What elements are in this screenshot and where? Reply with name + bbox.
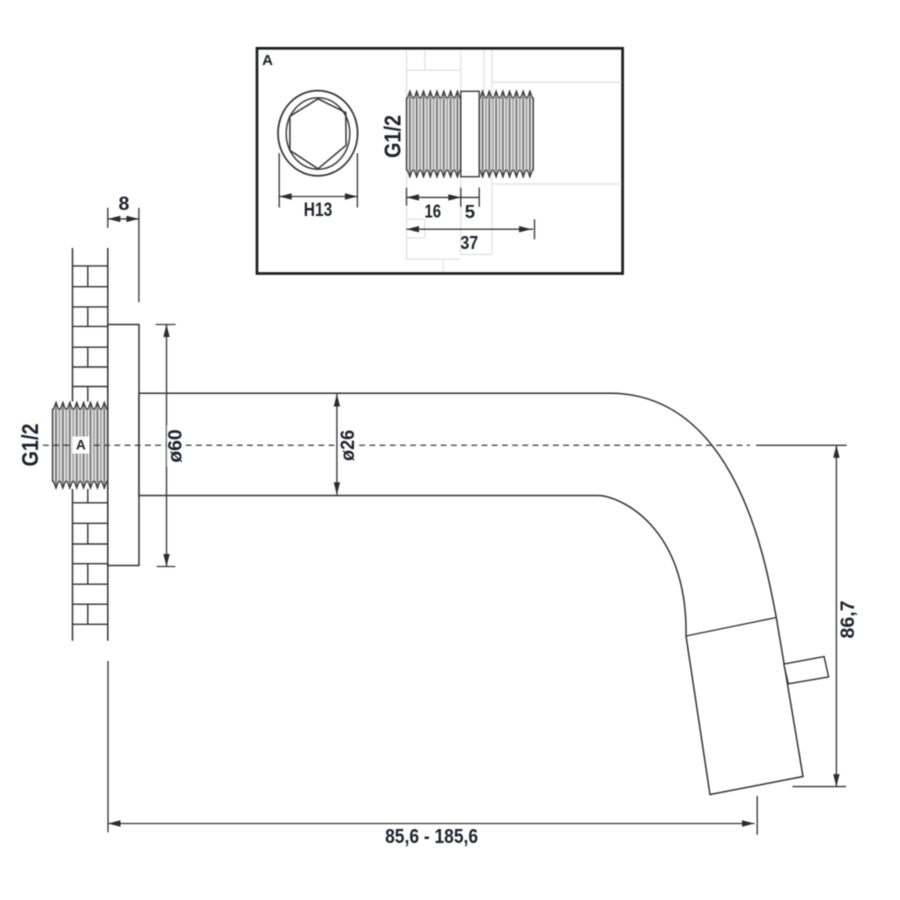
- svg-text:8: 8: [118, 193, 129, 215]
- svg-text:A: A: [262, 52, 273, 69]
- svg-text:G1/2: G1/2: [379, 115, 405, 158]
- svg-text:85,6 - 185,6: 85,6 - 185,6: [385, 826, 478, 848]
- svg-text:H13: H13: [304, 199, 333, 221]
- svg-text:16: 16: [425, 200, 442, 221]
- svg-text:86,7: 86,7: [837, 601, 859, 639]
- svg-text:5: 5: [465, 201, 475, 222]
- svg-text:ø60: ø60: [166, 429, 187, 462]
- svg-text:A: A: [76, 438, 86, 453]
- svg-text:37: 37: [460, 232, 478, 253]
- svg-text:G1/2: G1/2: [17, 424, 43, 467]
- svg-text:ø26: ø26: [338, 430, 359, 461]
